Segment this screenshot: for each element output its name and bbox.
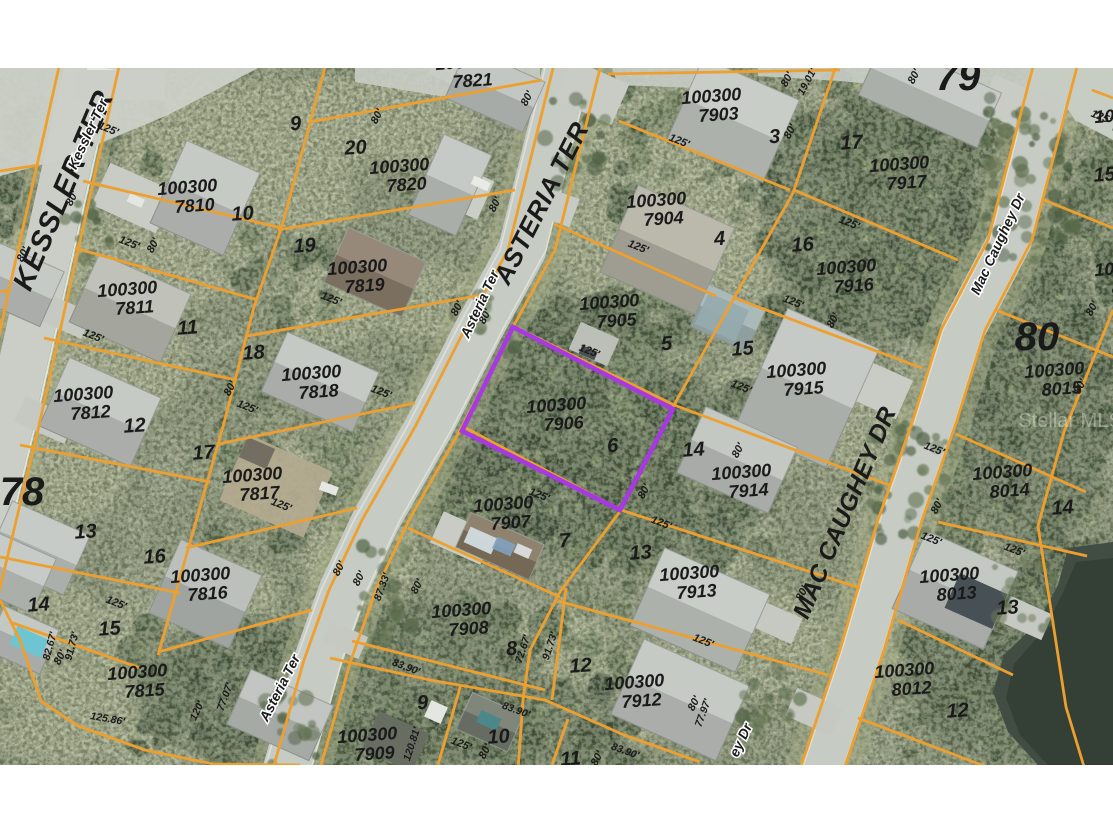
svg-text:7818: 7818 xyxy=(298,380,339,403)
svg-text:7913: 7913 xyxy=(676,580,717,603)
svg-text:7812: 7812 xyxy=(70,401,111,424)
svg-text:16: 16 xyxy=(143,545,168,569)
svg-text:15: 15 xyxy=(731,337,756,361)
svg-text:16: 16 xyxy=(791,233,816,257)
svg-text:7820: 7820 xyxy=(386,173,427,196)
svg-text:20: 20 xyxy=(343,136,368,160)
svg-text:14: 14 xyxy=(27,593,51,616)
svg-text:8014: 8014 xyxy=(989,479,1030,502)
svg-text:7815: 7815 xyxy=(124,679,166,702)
svg-text:13: 13 xyxy=(74,520,98,543)
svg-text:7914: 7914 xyxy=(728,479,769,502)
svg-text:14: 14 xyxy=(682,438,706,461)
svg-text:13: 13 xyxy=(996,596,1020,619)
svg-text:7810: 7810 xyxy=(174,194,215,217)
svg-text:11: 11 xyxy=(176,316,198,339)
svg-text:7904: 7904 xyxy=(643,207,684,230)
svg-text:10: 10 xyxy=(231,202,255,225)
svg-text:4: 4 xyxy=(712,228,726,251)
svg-text:17: 17 xyxy=(840,131,865,155)
svg-text:7907: 7907 xyxy=(490,511,532,534)
svg-text:100300: 100300 xyxy=(1094,256,1113,280)
svg-text:18: 18 xyxy=(242,341,267,365)
svg-text:15: 15 xyxy=(1093,163,1113,187)
svg-text:7905: 7905 xyxy=(596,309,638,332)
svg-text:80: 80 xyxy=(1015,315,1060,359)
svg-text:7917: 7917 xyxy=(886,171,928,194)
svg-text:78: 78 xyxy=(0,470,45,514)
svg-text:7908: 7908 xyxy=(448,617,489,640)
svg-text:7819: 7819 xyxy=(344,274,385,297)
svg-text:12: 12 xyxy=(569,654,593,677)
svg-text:10: 10 xyxy=(487,725,511,748)
svg-text:7816: 7816 xyxy=(187,582,229,605)
svg-text:7916: 7916 xyxy=(833,274,875,297)
svg-text:12: 12 xyxy=(123,414,147,437)
svg-text:7912: 7912 xyxy=(621,689,662,712)
svg-text:13: 13 xyxy=(629,541,653,564)
svg-text:14: 14 xyxy=(1051,496,1075,519)
svg-text:17: 17 xyxy=(192,441,217,465)
svg-text:7903: 7903 xyxy=(698,103,739,126)
svg-text:Stellar MLS: Stellar MLS xyxy=(1018,410,1113,432)
svg-text:19: 19 xyxy=(293,234,318,258)
svg-text:3: 3 xyxy=(768,126,781,149)
svg-text:15: 15 xyxy=(98,617,123,641)
svg-text:7909: 7909 xyxy=(354,742,395,765)
svg-text:8013: 8013 xyxy=(936,582,977,605)
svg-text:7821: 7821 xyxy=(452,69,493,92)
svg-text:12: 12 xyxy=(946,699,970,722)
svg-text:7906: 7906 xyxy=(543,412,585,435)
svg-text:7811: 7811 xyxy=(115,296,155,319)
svg-text:8012: 8012 xyxy=(891,677,932,700)
svg-text:7915: 7915 xyxy=(783,377,825,400)
